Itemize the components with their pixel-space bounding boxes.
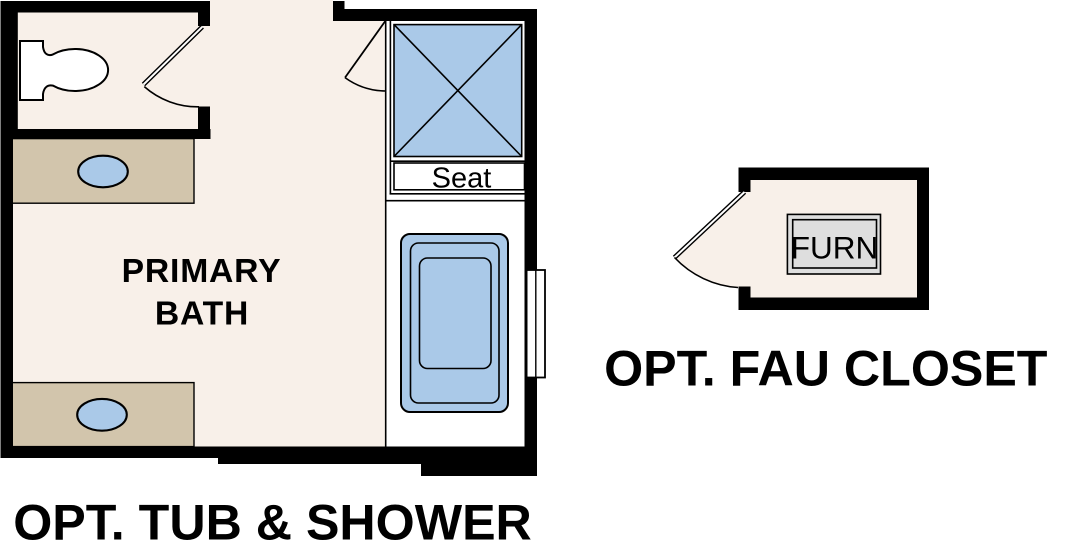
svg-text:BATH: BATH: [155, 295, 249, 333]
svg-text:OPT. TUB & SHOWER: OPT. TUB & SHOWER: [13, 495, 532, 551]
svg-text:Seat: Seat: [432, 162, 492, 194]
svg-text:FURN: FURN: [791, 229, 879, 265]
svg-text:OPT. FAU CLOSET: OPT. FAU CLOSET: [604, 341, 1048, 397]
svg-text:PRIMARY: PRIMARY: [122, 252, 282, 290]
